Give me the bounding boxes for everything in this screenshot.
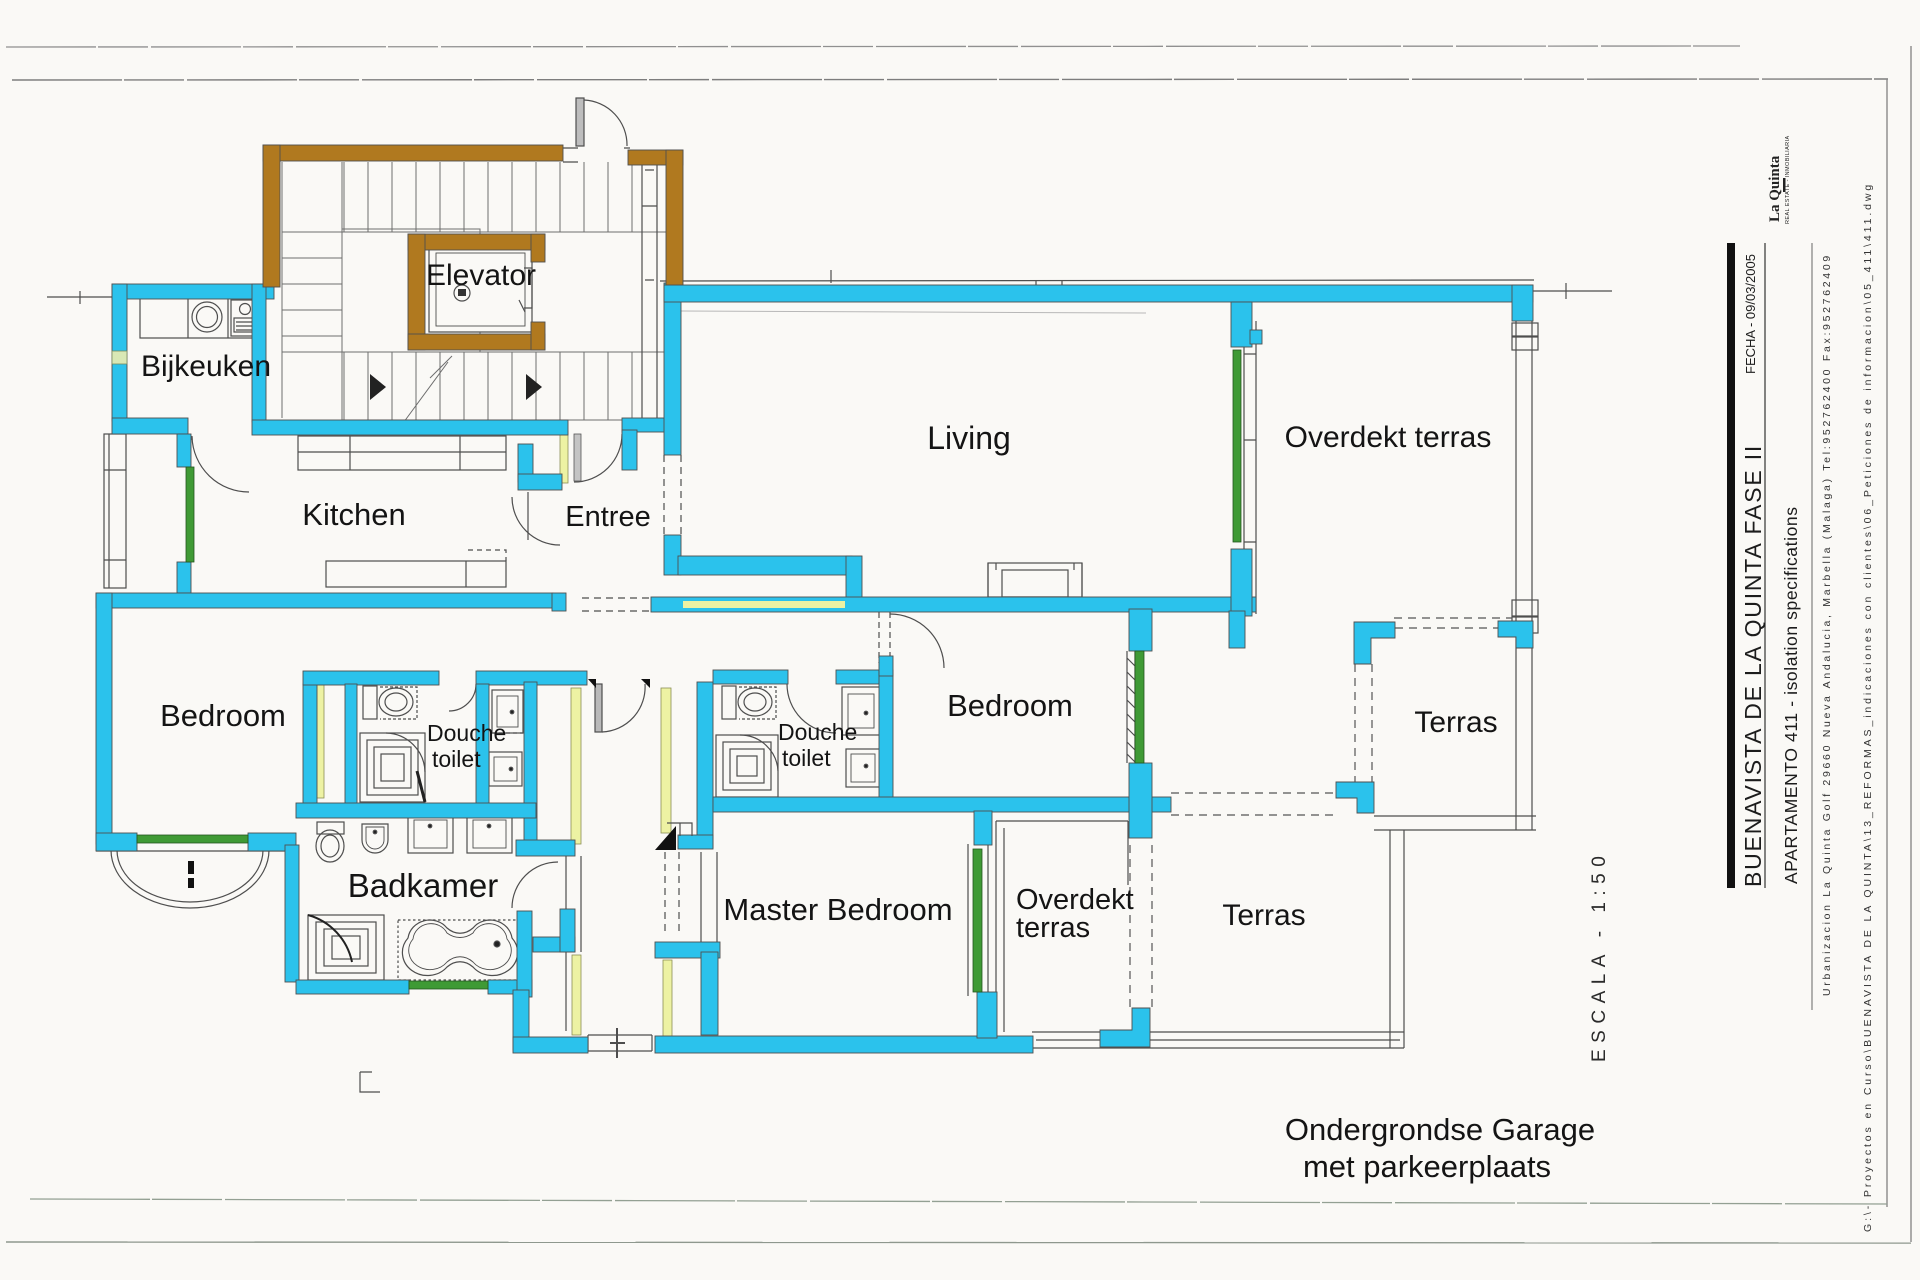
svg-text:Douche: Douche bbox=[427, 720, 506, 746]
svg-text:Entree: Entree bbox=[565, 501, 650, 533]
svg-text:Ondergrondse Garage: Ondergrondse Garage bbox=[1285, 1112, 1595, 1147]
svg-text:Bedroom: Bedroom bbox=[160, 698, 286, 733]
svg-text:Bijkeuken: Bijkeuken bbox=[141, 350, 271, 383]
svg-text:Kitchen: Kitchen bbox=[302, 497, 405, 532]
svg-text:toilet: toilet bbox=[432, 746, 481, 772]
svg-text:ESCALA - 1:50: ESCALA - 1:50 bbox=[1589, 850, 1610, 1062]
svg-text:met parkeerplaats: met parkeerplaats bbox=[1303, 1149, 1551, 1184]
svg-text:Badkamer: Badkamer bbox=[348, 867, 498, 904]
svg-text:Terras: Terras bbox=[1414, 706, 1497, 739]
svg-text:Urbanizacion La Quinta Golf 2: Urbanizacion La Quinta Golf 29660 Nueva … bbox=[1821, 253, 1833, 996]
svg-text:terras: terras bbox=[1016, 912, 1090, 944]
svg-text:Elevator: Elevator bbox=[426, 259, 536, 292]
svg-text:Douche: Douche bbox=[778, 719, 857, 745]
svg-text:toilet: toilet bbox=[782, 745, 831, 771]
svg-text:Bedroom: Bedroom bbox=[947, 688, 1073, 723]
svg-text:FECHA - 09/03/2005: FECHA - 09/03/2005 bbox=[1743, 254, 1758, 374]
svg-text:APARTAMENTO 411 - isolation: APARTAMENTO 411 - isolation specificatio… bbox=[1781, 506, 1801, 884]
svg-text:Terras: Terras bbox=[1222, 899, 1305, 932]
svg-text:REAL ESTATE - INMOBILIARIA: REAL ESTATE - INMOBILIARIA bbox=[1785, 135, 1791, 224]
svg-text:Overdekt terras: Overdekt terras bbox=[1285, 421, 1492, 454]
svg-text:BUENAVISTA DE LA QUINTA FASE I: BUENAVISTA DE LA QUINTA FASE II bbox=[1740, 444, 1766, 887]
svg-text:Master Bedroom: Master Bedroom bbox=[723, 892, 952, 927]
svg-text:Living: Living bbox=[927, 420, 1011, 456]
svg-text:La Quinta: La Quinta bbox=[1767, 155, 1783, 222]
svg-text:G:\- Proyectos en Curso\BUENAV: G:\- Proyectos en Curso\BUENAVISTA DE LA… bbox=[1862, 182, 1874, 1232]
